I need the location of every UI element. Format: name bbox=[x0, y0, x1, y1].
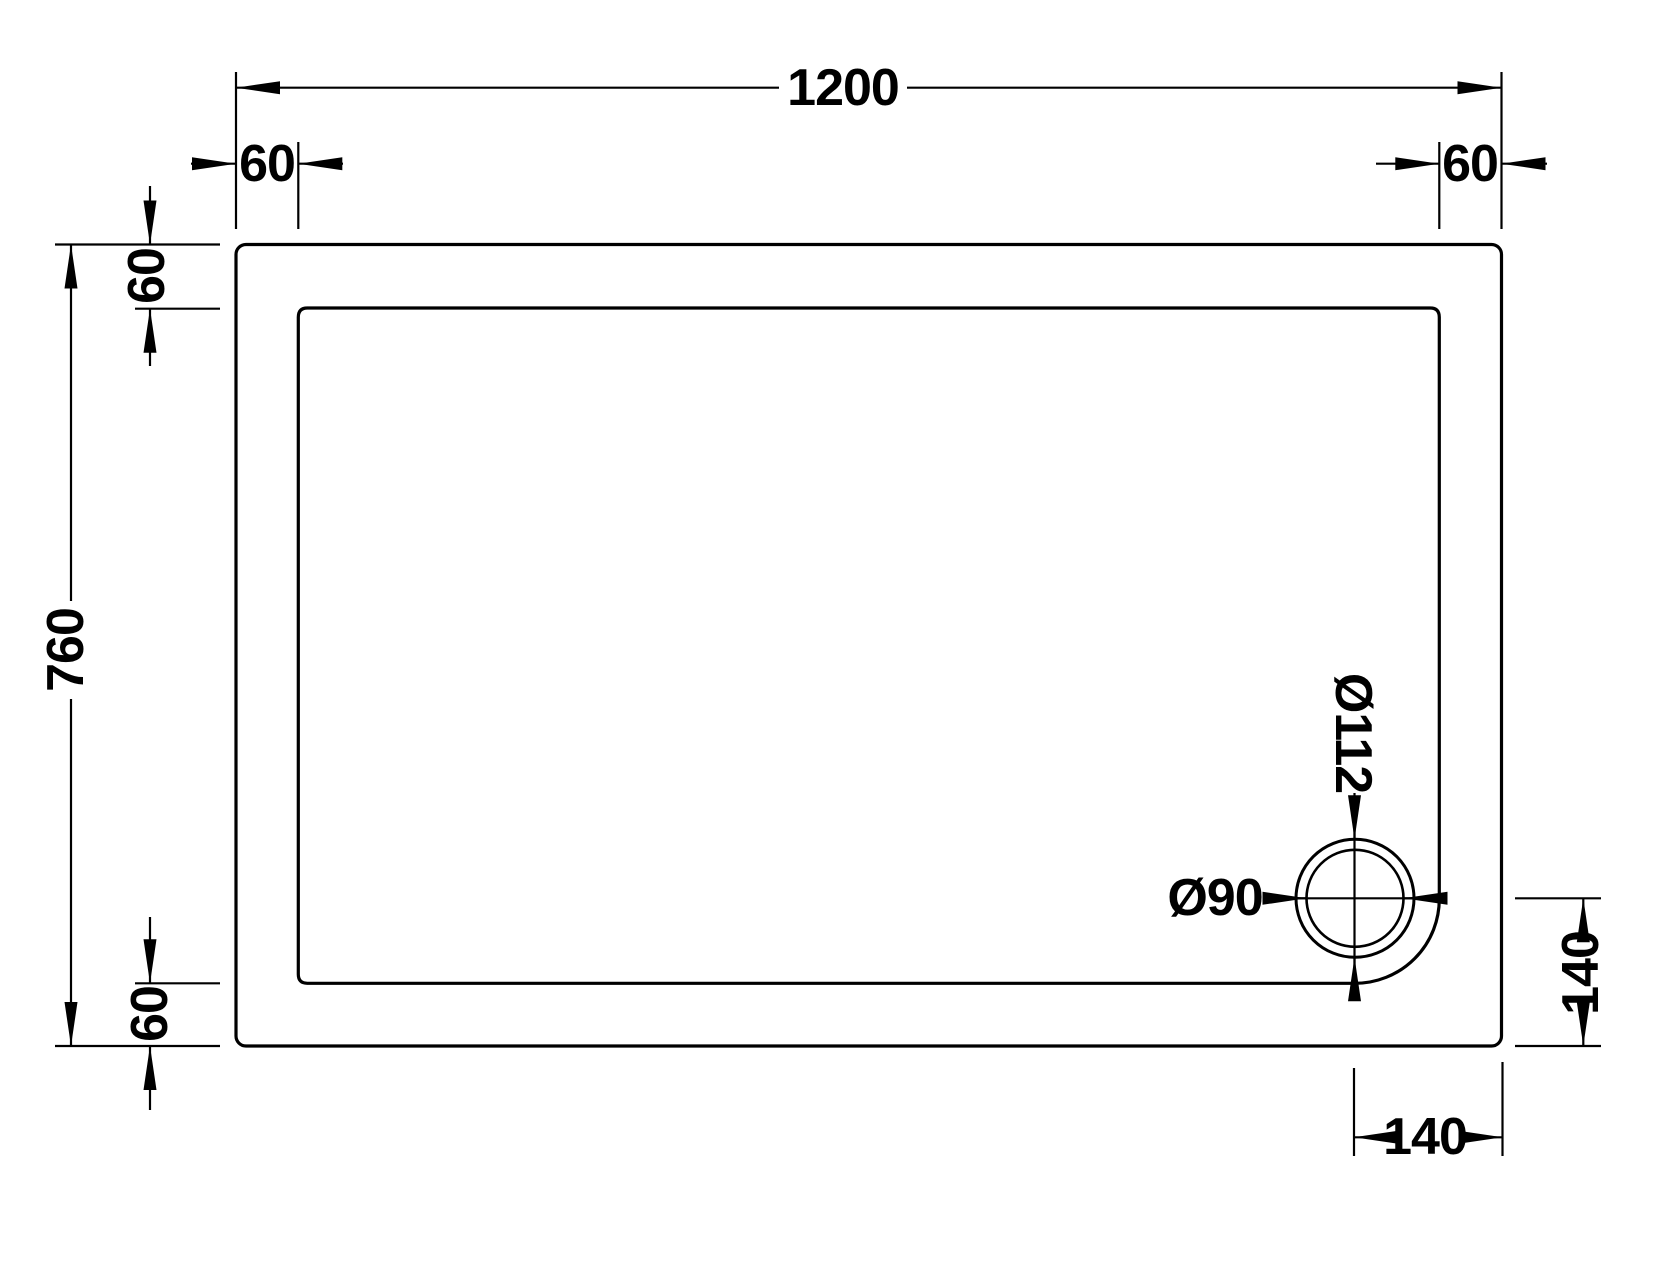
label-waste-offset-bottom: 140 bbox=[1383, 1108, 1467, 1166]
label-waste-offset-right: 140 bbox=[1552, 931, 1610, 1015]
label-waste-bore-diameter: Ø90 bbox=[1167, 869, 1262, 927]
label-overall-height: 760 bbox=[37, 608, 95, 692]
label-overall-width: 1200 bbox=[787, 59, 899, 117]
tray-outer-outline bbox=[236, 245, 1502, 1047]
tray-outlines bbox=[236, 245, 1502, 1047]
extension-lines bbox=[55, 72, 1601, 1156]
label-rim-top-left: 60 bbox=[239, 135, 295, 193]
label-rim-left-top: 60 bbox=[118, 248, 176, 304]
shower-tray-dimension-drawing: 1200 60 60 760 60 60 Ø112 Ø90 140 140 bbox=[0, 0, 1653, 1263]
technical-drawing-canvas: 1200 60 60 760 60 60 Ø112 Ø90 140 140 bbox=[0, 0, 1653, 1263]
tray-inner-outline bbox=[298, 308, 1439, 983]
label-rim-top-right: 60 bbox=[1442, 135, 1498, 193]
label-waste-outer-diameter: Ø112 bbox=[1324, 673, 1382, 793]
dimension-labels: 1200 60 60 760 60 60 Ø112 Ø90 140 140 bbox=[37, 59, 1610, 1166]
label-rim-left-bottom: 60 bbox=[121, 986, 179, 1042]
